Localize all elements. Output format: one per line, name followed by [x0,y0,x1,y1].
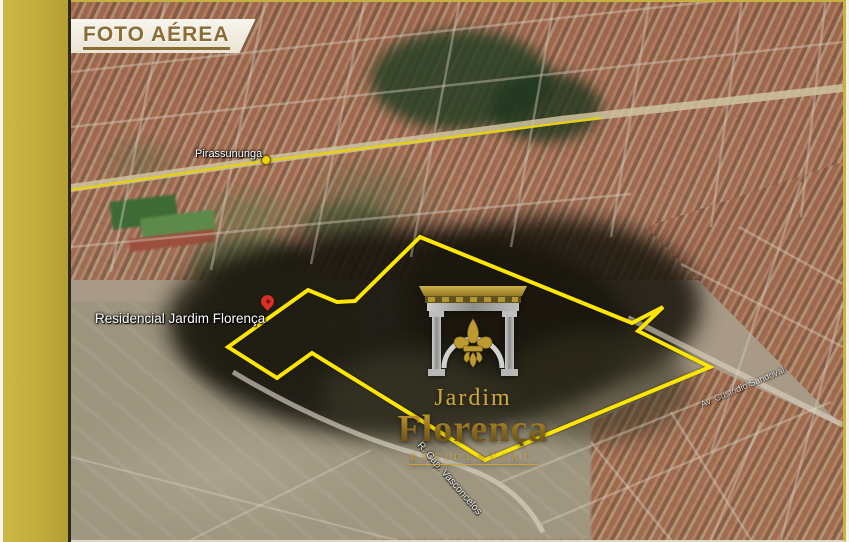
title-plate: FOTO AÉREA [71,19,256,53]
city-label: Pirassununga [195,148,262,160]
avenue-road [628,318,843,425]
map-canvas: Pirassununga Residencial Jardim Florença… [71,2,843,540]
logo-name-line2: Florença [363,412,583,446]
place-label: Residencial Jardim Florença [95,311,265,326]
development-logo: Jardim Florença RESIDENCIAL [363,274,583,465]
city-marker-icon [261,155,271,165]
left-accent-bar [3,0,71,542]
page-title: FOTO AÉREA [83,23,230,50]
aerial-photo: Pirassununga Residencial Jardim Florença… [71,0,846,542]
slide: Pirassununga Residencial Jardim Florença… [0,0,849,542]
logo-tagline: RESIDENCIAL [409,449,538,465]
logo-arch-icon [413,274,533,382]
fleur-de-lis-icon [454,319,492,367]
